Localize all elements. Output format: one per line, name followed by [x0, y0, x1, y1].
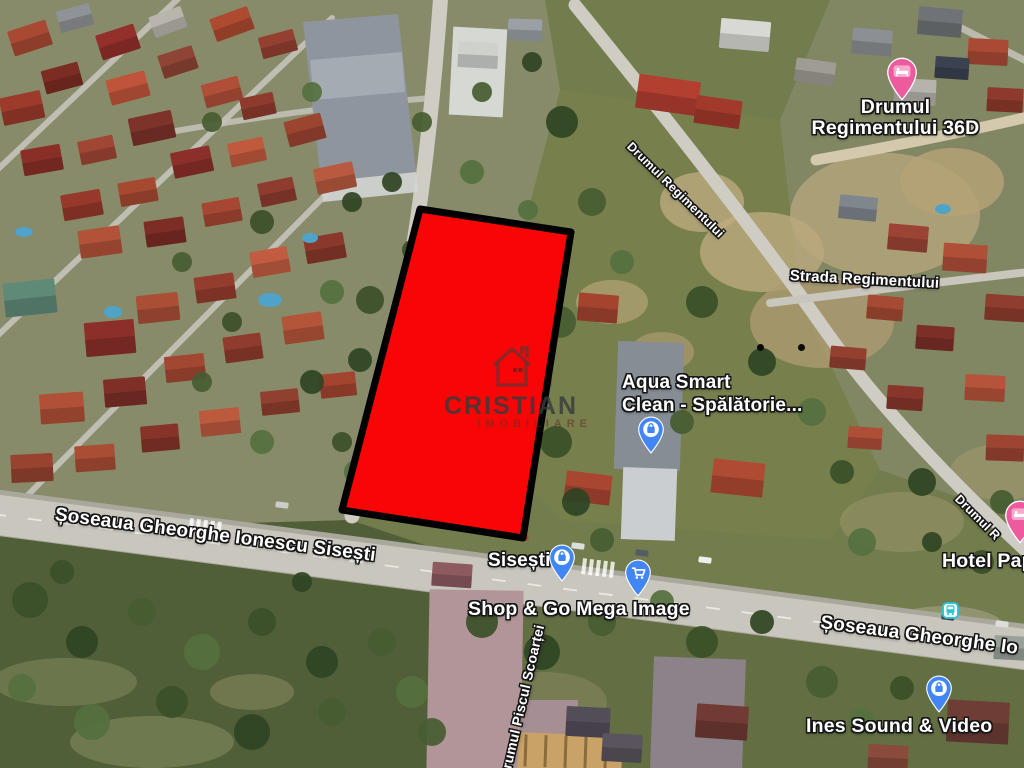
lodging-pin-36d[interactable] [886, 57, 918, 106]
ines-pin[interactable] [925, 675, 953, 718]
lodging-pin-right-edge[interactable] [1004, 500, 1024, 549]
map-canvas[interactable]: CRISTIAN IMOBILIARE Drumul Regimentului … [0, 0, 1024, 768]
aqua-smart-pin[interactable] [637, 416, 665, 459]
sisesti-pin[interactable] [548, 544, 576, 587]
label-aqua-smart-clean[interactable]: Aqua Smart Clean - Spălătorie... [622, 371, 803, 417]
label-shop-and-go-mega-image[interactable]: Shop & Go Mega Image [468, 599, 690, 621]
map-dot [757, 344, 764, 351]
label-ines-sound-video[interactable]: Ines Sound & Video [806, 716, 992, 738]
bus-stop-icon[interactable] [942, 602, 959, 624]
bus-icon [942, 602, 959, 619]
map-dot [798, 344, 805, 351]
mega-image-cart-pin[interactable] [624, 559, 652, 602]
label-sisesti-stop[interactable]: Sisești [488, 550, 551, 571]
